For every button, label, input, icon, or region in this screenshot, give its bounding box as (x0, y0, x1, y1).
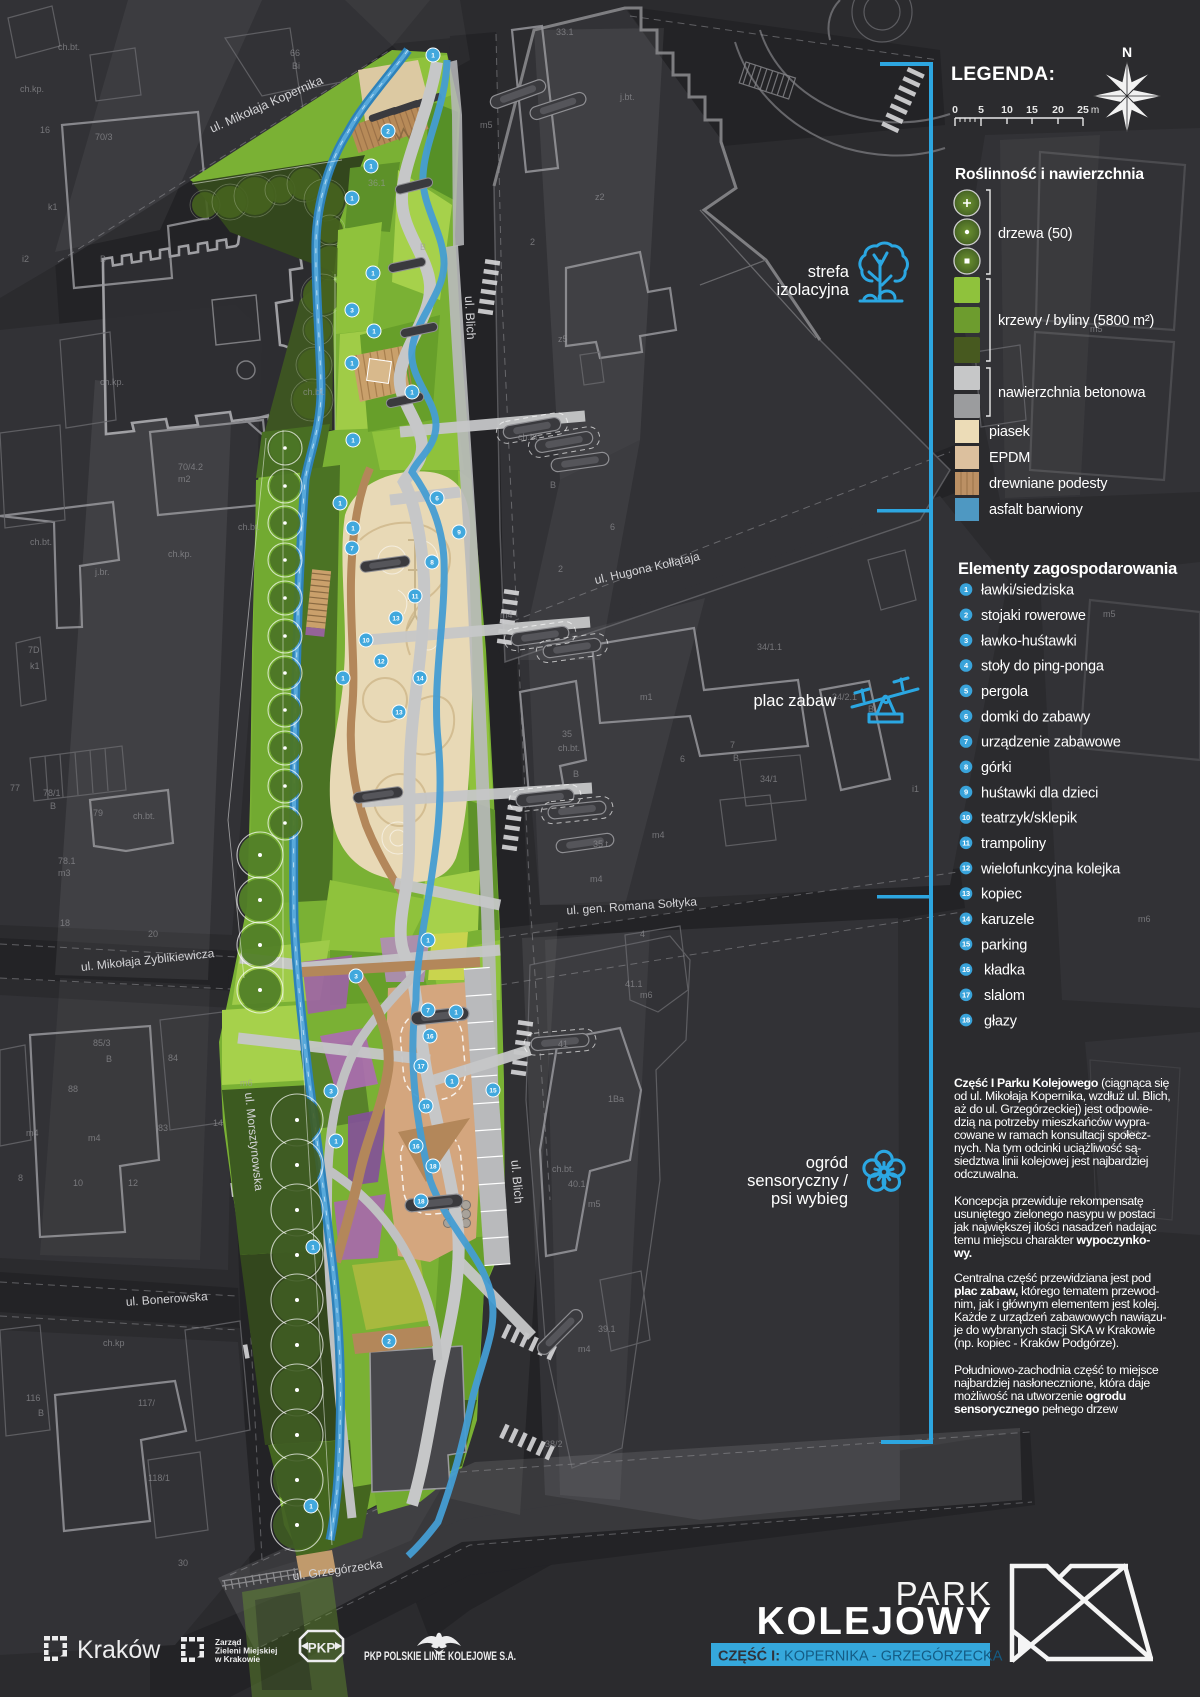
svg-text:1: 1 (311, 1244, 315, 1251)
svg-text:3: 3 (350, 307, 354, 314)
svg-text:116: 116 (26, 1393, 40, 1403)
svg-text:ogród: ogród (806, 1154, 848, 1172)
svg-text:B: B (50, 801, 56, 811)
svg-text:kopiec: kopiec (981, 887, 1022, 903)
svg-text:78.1: 78.1 (58, 856, 76, 866)
svg-text:ch.bt.: ch.bt. (558, 743, 580, 753)
svg-text:70/4.2: 70/4.2 (178, 462, 203, 472)
svg-text:1: 1 (454, 1009, 458, 1016)
svg-text:Kraków: Kraków (77, 1636, 161, 1664)
svg-text:k1: k1 (48, 202, 58, 212)
svg-text:B: B (38, 1408, 44, 1418)
svg-text:m4: m4 (578, 1344, 591, 1354)
svg-text:3: 3 (354, 973, 358, 980)
svg-text:3: 3 (964, 636, 968, 645)
svg-text:psi wybieg: psi wybieg (771, 1190, 848, 1208)
svg-text:z2: z2 (595, 192, 605, 202)
svg-text:Roślinność i nawierzchnia: Roślinność i nawierzchnia (955, 166, 1144, 183)
svg-text:0: 0 (952, 104, 958, 116)
svg-text:10: 10 (1001, 104, 1013, 116)
svg-text:ch.bt.: ch.bt. (133, 811, 155, 821)
svg-text:38/2: 38/2 (545, 1439, 563, 1449)
svg-text:88: 88 (68, 1084, 78, 1094)
svg-text:1: 1 (431, 52, 435, 59)
svg-text:teatrzyk/sklepik: teatrzyk/sklepik (981, 811, 1078, 827)
svg-text:urządzenie zabawowe: urządzenie zabawowe (981, 735, 1121, 751)
svg-text:j.br.: j.br. (94, 567, 110, 577)
svg-text:15: 15 (962, 940, 970, 949)
svg-text:je do wybranych stacji SKA w K: je do wybranych stacji SKA w Krakowie (953, 1323, 1155, 1337)
svg-text:1: 1 (334, 1138, 338, 1145)
svg-text:aż do ul. Grzegórzeckiej) jest: aż do ul. Grzegórzeckiej) jest odpowie- (954, 1102, 1152, 1116)
svg-text:ch.kp.: ch.kp. (20, 84, 44, 94)
svg-text:13: 13 (392, 615, 400, 622)
svg-text:34/1: 34/1 (760, 774, 778, 784)
svg-text:pergola: pergola (981, 684, 1029, 700)
svg-text:8: 8 (430, 559, 434, 566)
svg-text:stojaki rowerowe: stojaki rowerowe (981, 608, 1086, 624)
svg-text:1: 1 (309, 1503, 313, 1510)
svg-text:7: 7 (426, 1007, 430, 1014)
svg-text:m1: m1 (640, 692, 653, 702)
svg-text:(np. kopiec - Kraków Podgórze): (np. kopiec - Kraków Podgórze). (954, 1336, 1119, 1350)
svg-text:ch.kp: ch.kp (103, 1338, 125, 1348)
svg-text:1: 1 (964, 585, 968, 594)
svg-text:i1: i1 (912, 784, 919, 794)
svg-text:16: 16 (962, 965, 970, 974)
svg-text:trampoliny: trampoliny (981, 836, 1047, 852)
svg-text:11: 11 (412, 593, 419, 600)
svg-text:Bi: Bi (292, 61, 300, 71)
svg-text:18: 18 (962, 1016, 970, 1025)
svg-text:KOLEJOWY: KOLEJOWY (757, 1600, 993, 1643)
svg-text:plac zabaw: plac zabaw (753, 692, 836, 710)
svg-text:1: 1 (338, 500, 342, 507)
svg-text:1: 1 (369, 163, 373, 170)
svg-text:usuniętego zielonego nasypu w: usuniętego zielonego nasypu w postaci (954, 1207, 1155, 1221)
svg-text:18: 18 (60, 918, 70, 928)
svg-text:CZĘŚĆ I: KOPERNIKA - GRZEGÓRZE: CZĘŚĆ I: KOPERNIKA - GRZEGÓRZECKA (718, 1647, 1003, 1665)
svg-text:4: 4 (640, 929, 645, 939)
svg-text:możliwość na utworzenie ogrodu: możliwość na utworzenie ogrodu (954, 1389, 1126, 1403)
svg-text:krzewy / byliny (5800 m²): krzewy / byliny (5800 m²) (998, 313, 1154, 329)
svg-text:m2: m2 (178, 474, 191, 484)
svg-text:w Krakowie: w Krakowie (214, 1655, 260, 1664)
svg-text:jak największej ilości nasadze: jak największej ilości nasadzeń nadając (953, 1220, 1157, 1234)
svg-text:ławki/siedziska: ławki/siedziska (981, 583, 1075, 599)
svg-text:karuzele: karuzele (981, 912, 1034, 928)
svg-text:6: 6 (680, 754, 685, 764)
svg-text:drewniane podesty: drewniane podesty (989, 476, 1108, 492)
svg-text:slalom: slalom (984, 988, 1025, 1004)
svg-text:16: 16 (426, 1033, 434, 1040)
svg-text:nych. Na tym odcinki uciążliwo: nych. Na tym odcinki uciążliwość są- (954, 1141, 1141, 1155)
svg-text:m: m (1091, 105, 1099, 116)
svg-text:1: 1 (350, 195, 354, 202)
svg-text:1: 1 (410, 389, 414, 396)
svg-text:nim, jak i głównym elementem j: nim, jak i głównym elementem jest kolej. (954, 1297, 1159, 1311)
svg-text:77: 77 (10, 783, 20, 793)
svg-text:11: 11 (962, 838, 970, 847)
svg-text:m5: m5 (588, 1199, 601, 1209)
svg-text:j.bt.: j.bt. (619, 92, 635, 102)
svg-text:41: 41 (558, 1039, 568, 1049)
svg-text:PKP POLSKIE LINIE KOLEJOWE S.A: PKP POLSKIE LINIE KOLEJOWE S.A. (364, 1651, 516, 1663)
svg-text:2: 2 (386, 128, 390, 135)
svg-text:40.1: 40.1 (568, 1179, 586, 1189)
svg-text:m4: m4 (88, 1133, 101, 1143)
svg-text:12: 12 (377, 658, 385, 665)
svg-text:piasek: piasek (989, 424, 1031, 440)
svg-text:79: 79 (93, 808, 103, 818)
svg-text:9: 9 (457, 529, 461, 536)
svg-text:górki: górki (981, 760, 1011, 776)
svg-text:Część I Parku Kolejowego (ciąg: Część I Parku Kolejowego (ciągnąca się (954, 1076, 1169, 1090)
svg-text:i2: i2 (22, 254, 29, 264)
svg-text:1: 1 (351, 437, 355, 444)
svg-text:wy.: wy. (953, 1246, 972, 1260)
svg-text:cowane w ramach konsultacji sp: cowane w ramach konsultacji społecz- (954, 1128, 1151, 1142)
svg-text:ch.bt.: ch.bt. (238, 522, 260, 532)
svg-text:16: 16 (40, 125, 50, 135)
svg-text:z5: z5 (558, 334, 568, 344)
svg-text:7D: 7D (28, 645, 40, 655)
svg-text:35: 35 (562, 729, 572, 739)
svg-text:10: 10 (962, 813, 970, 822)
svg-text:6: 6 (610, 522, 615, 532)
svg-text:1: 1 (341, 675, 345, 682)
svg-text:25: 25 (1077, 104, 1089, 116)
svg-text:6: 6 (435, 495, 439, 502)
svg-text:1: 1 (450, 1078, 454, 1085)
svg-text:13: 13 (962, 889, 970, 898)
svg-text:strefa: strefa (808, 263, 850, 281)
svg-text:9: 9 (964, 788, 968, 797)
svg-text:m6: m6 (640, 990, 653, 1000)
svg-text:10: 10 (422, 1103, 430, 1110)
svg-text:siedztwa linii kolejowej jest: siedztwa linii kolejowej jest najbardzie… (954, 1154, 1148, 1168)
svg-text:17: 17 (417, 1063, 425, 1070)
svg-text:12: 12 (128, 1178, 138, 1188)
svg-text:asfalt barwiony: asfalt barwiony (989, 502, 1084, 518)
svg-text:B: B (106, 1054, 112, 1064)
svg-text:2: 2 (387, 1338, 391, 1345)
svg-text:16: 16 (412, 1143, 420, 1150)
svg-text:ch.bt.: ch.bt. (552, 1164, 574, 1174)
svg-text:LEGENDA:: LEGENDA: (951, 63, 1055, 85)
svg-text:drzewa (50): drzewa (50) (998, 226, 1072, 242)
svg-text:izolacyjna: izolacyjna (777, 281, 850, 299)
svg-text:m4: m4 (652, 830, 665, 840)
svg-text:36.1: 36.1 (368, 178, 386, 188)
svg-text:15: 15 (1026, 104, 1038, 116)
svg-text:18: 18 (429, 1163, 437, 1170)
svg-text:m5: m5 (1103, 609, 1116, 619)
svg-text:7: 7 (350, 545, 354, 552)
svg-text:N: N (1122, 44, 1132, 60)
svg-text:78/1: 78/1 (43, 788, 61, 798)
svg-text:12: 12 (962, 864, 970, 873)
svg-text:85/3: 85/3 (93, 1038, 111, 1048)
svg-text:m3: m3 (58, 868, 71, 878)
svg-text:33.1: 33.1 (556, 27, 574, 37)
svg-text:1: 1 (372, 328, 376, 335)
svg-text:B: B (420, 242, 426, 252)
svg-text:ch.bt.: ch.bt. (303, 387, 325, 397)
svg-text:m4: m4 (590, 874, 603, 884)
svg-text:stoły do ping-ponga: stoły do ping-ponga (981, 659, 1105, 675)
svg-text:najbardziej nasłonecznione, kt: najbardziej nasłonecznione, która daje (954, 1376, 1150, 1390)
svg-text:8: 8 (964, 762, 968, 771)
svg-text:2: 2 (964, 610, 968, 619)
svg-text:14: 14 (416, 675, 424, 682)
svg-text:7: 7 (964, 737, 968, 746)
svg-text:2: 2 (530, 237, 535, 247)
svg-text:14: 14 (213, 1118, 223, 1128)
svg-text:118/1: 118/1 (148, 1473, 170, 1483)
svg-text:7: 7 (730, 740, 735, 750)
svg-text:EPDM: EPDM (989, 450, 1030, 466)
svg-text:20: 20 (1052, 104, 1064, 116)
svg-text:temu miejscu charakter wypoczy: temu miejscu charakter wypoczynko- (954, 1233, 1150, 1247)
svg-text:głazy: głazy (984, 1013, 1018, 1029)
svg-text:parking: parking (981, 937, 1027, 953)
svg-text:6: 6 (964, 712, 968, 721)
svg-text:66: 66 (290, 48, 300, 58)
svg-text:sensoryczny /: sensoryczny / (747, 1172, 848, 1190)
svg-text:34/1.1: 34/1.1 (757, 642, 782, 652)
svg-text:ul. Blich: ul. Blich (462, 296, 478, 340)
svg-text:17: 17 (962, 990, 970, 999)
svg-text:PKP: PKP (308, 1641, 336, 1656)
svg-text:sensorycznego pełnego drzew: sensorycznego pełnego drzew (954, 1402, 1118, 1416)
svg-text:2: 2 (558, 564, 563, 574)
svg-text:od ul. Mikołaja Kopernika, wzd: od ul. Mikołaja Kopernika, wzdłuż ul. Bl… (954, 1089, 1170, 1103)
svg-text:B: B (733, 753, 739, 763)
svg-text:m6: m6 (240, 1078, 253, 1088)
svg-text:nawierzchnia betonowa: nawierzchnia betonowa (998, 385, 1146, 401)
svg-text:plac zabaw, którego tematem pr: plac zabaw, którego tematem przewod- (954, 1284, 1159, 1298)
svg-text:k1: k1 (30, 661, 40, 671)
svg-text:m4: m4 (500, 610, 513, 620)
svg-text:1Ba: 1Ba (608, 1094, 624, 1104)
svg-text:odczuwalna.: odczuwalna. (954, 1167, 1019, 1181)
svg-text:B: B (573, 769, 579, 779)
svg-text:117/: 117/ (138, 1398, 155, 1408)
svg-text:8: 8 (18, 1173, 23, 1183)
svg-text:1: 1 (371, 270, 375, 277)
svg-text:20: 20 (148, 929, 158, 939)
svg-text:ch.bt.: ch.bt. (518, 432, 540, 442)
svg-text:kładka: kładka (984, 963, 1026, 979)
svg-text:m6: m6 (1138, 914, 1151, 924)
svg-text:domki do zabawy: domki do zabawy (981, 709, 1091, 725)
svg-text:13: 13 (395, 709, 403, 716)
svg-text:ch.bt.: ch.bt. (30, 537, 52, 547)
svg-text:3: 3 (329, 1088, 333, 1095)
svg-text:39.1: 39.1 (598, 1324, 616, 1334)
svg-text:ch.kp.: ch.kp. (100, 377, 124, 387)
svg-text:10: 10 (362, 637, 370, 644)
svg-text:ławko-huśtawki: ławko-huśtawki (981, 633, 1077, 649)
svg-text:B: B (550, 480, 556, 490)
svg-text:30: 30 (178, 1558, 188, 1568)
svg-text:m4: m4 (26, 1128, 39, 1138)
svg-text:B: B (100, 254, 106, 264)
svg-text:84: 84 (168, 1053, 178, 1063)
svg-text:70/3: 70/3 (95, 132, 113, 142)
svg-text:35 t.: 35 t. (593, 839, 611, 849)
svg-text:wielofunkcyjna kolejka: wielofunkcyjna kolejka (980, 861, 1121, 877)
svg-text:1: 1 (351, 525, 355, 532)
svg-text:ch.bt.: ch.bt. (58, 42, 80, 52)
svg-text:huśtawki dla dzieci: huśtawki dla dzieci (981, 785, 1098, 801)
svg-text:41.1: 41.1 (625, 979, 643, 989)
svg-text:5: 5 (964, 686, 968, 695)
svg-text:83: 83 (158, 1123, 168, 1133)
svg-text:Centralna część przewidziana j: Centralna część przewidziana jest pod (954, 1271, 1151, 1285)
svg-text:15: 15 (489, 1087, 497, 1094)
svg-text:Elementy zagospodarowania: Elementy zagospodarowania (958, 560, 1178, 578)
svg-text:14: 14 (962, 914, 971, 923)
svg-text:1: 1 (350, 360, 354, 367)
svg-text:Południowo-zachodnia część to: Południowo-zachodnia część to miejsce (954, 1363, 1159, 1377)
svg-text:ch.kp.: ch.kp. (168, 549, 192, 559)
svg-text:1: 1 (426, 937, 430, 944)
svg-text:5: 5 (978, 104, 984, 116)
svg-text:18: 18 (417, 1198, 425, 1205)
svg-text:10: 10 (73, 1178, 83, 1188)
svg-text:dzią na potrzeby mieszkańców w: dzią na potrzeby mieszkańców wypra- (954, 1115, 1150, 1129)
svg-text:Koncepcja przewiduje rekompens: Koncepcja przewiduje rekompensatę (954, 1194, 1144, 1208)
svg-text:Każde z urządzeń zabawowych na: Każde z urządzeń zabawowych nawiązu- (954, 1310, 1167, 1324)
svg-text:m5: m5 (480, 120, 493, 130)
